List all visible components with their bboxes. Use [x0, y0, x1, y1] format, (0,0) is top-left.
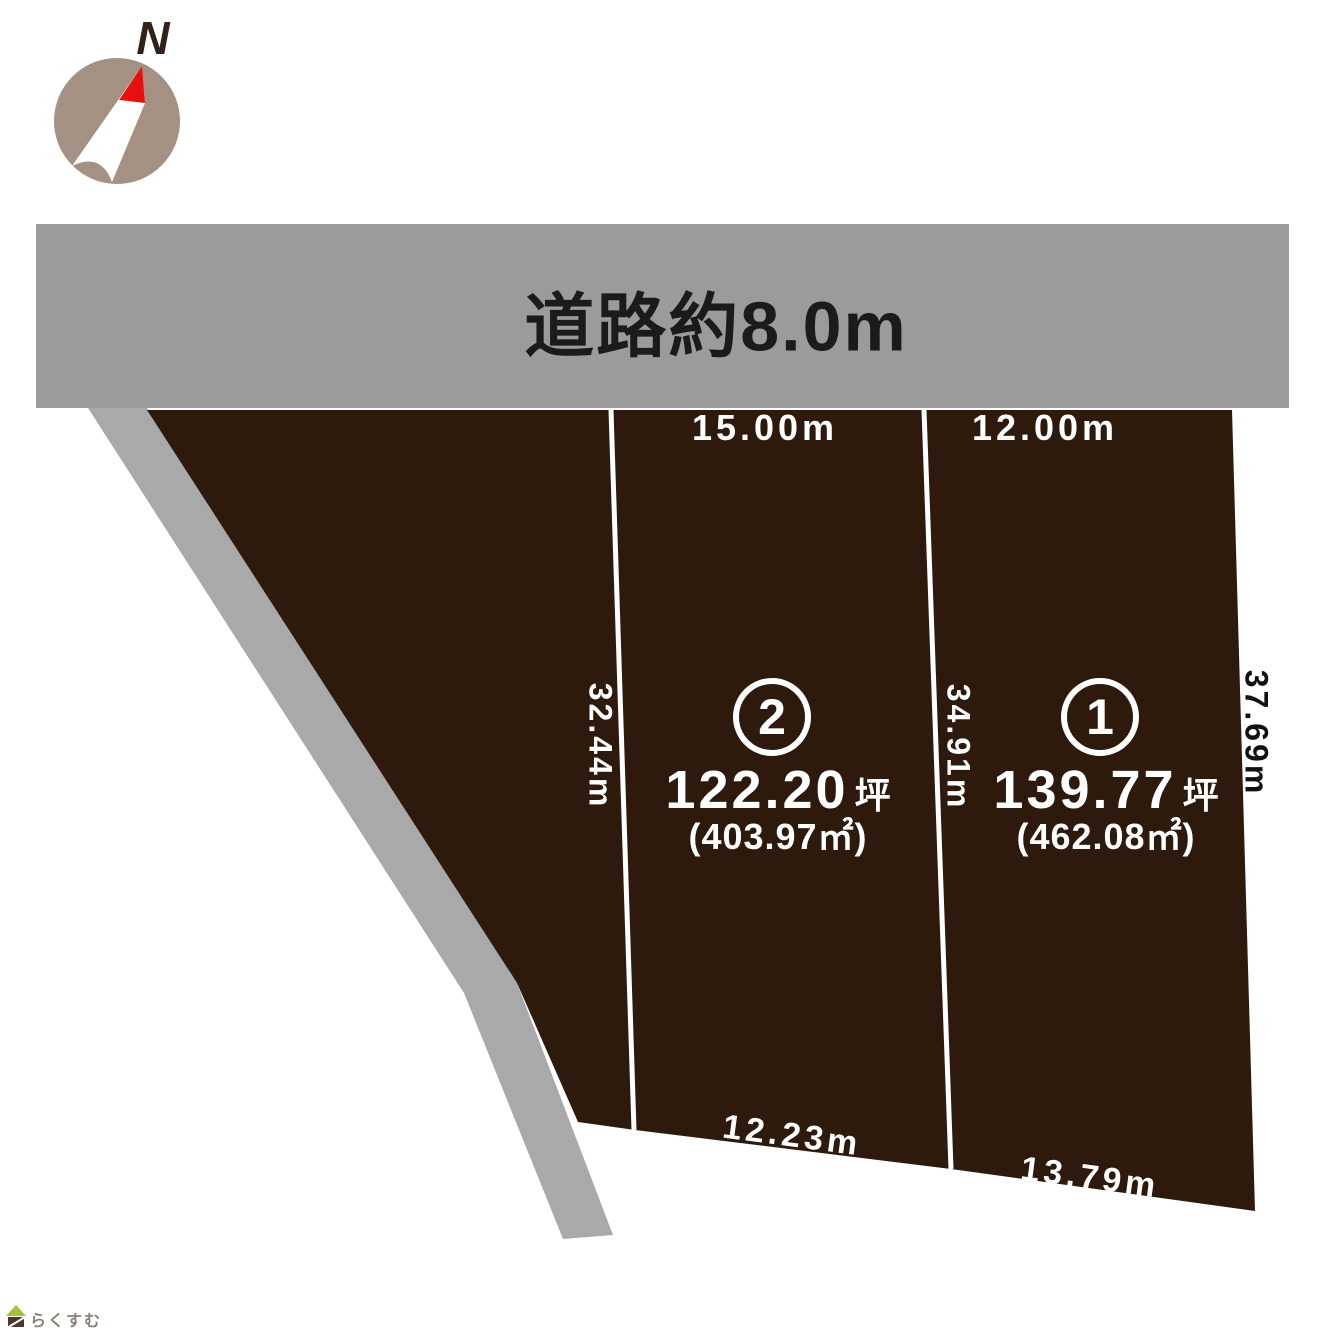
lot-plan-diagram: N 道路約8.0m 15.00m 12.00m 32.44m 34.91m 37… [0, 0, 1333, 1333]
dimension-side-east: 37.69m [1238, 670, 1275, 797]
plot1-number-badge: 1 [1061, 678, 1139, 756]
watermark-text: らくすむ [30, 1307, 102, 1331]
watermark-roof [6, 1305, 26, 1316]
dimension-plot2-frontage: 15.00m [692, 407, 838, 449]
dimension-plot1-frontage: 12.00m [972, 407, 1118, 449]
compass-icon [54, 58, 180, 184]
plot2-area-sqm: (403.97㎡) [688, 808, 867, 860]
watermark-house-icon [6, 1305, 26, 1328]
plot1-area-sqm: (462.08㎡) [1016, 808, 1195, 860]
plot2-number-badge: 2 [733, 678, 811, 756]
dimension-side-west: 32.44m [582, 683, 619, 810]
plot2-number: 2 [758, 688, 786, 746]
site-plan-svg [0, 0, 1333, 1333]
dimension-side-middle: 34.91m [940, 684, 977, 811]
road-label: 道路約8.0m [524, 271, 908, 372]
plot1-number: 1 [1086, 688, 1114, 746]
north-label: N [136, 11, 169, 65]
